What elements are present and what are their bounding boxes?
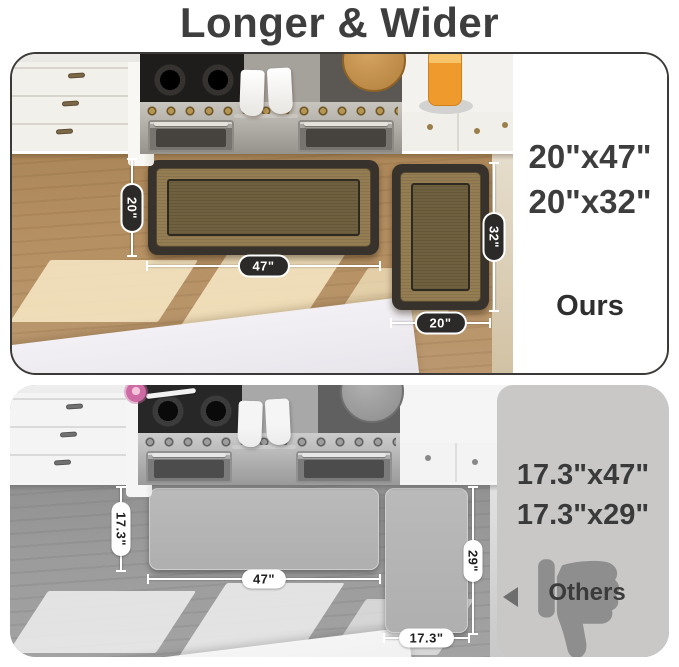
others-info-block: 17.3"x47" 17.3"x29" Others [497,385,669,657]
oven-door [146,451,232,483]
competitor-runner-mat [149,488,379,570]
ours-sizes: 20"x47" 20"x32" [528,134,651,224]
ours-panel: 20" 47" 32" 20" 20"x47" 20"x32" Ours [10,52,669,375]
cabinet-knob [474,128,480,134]
oven-door [148,120,234,152]
spatula-handle [146,388,196,399]
drawer-handle [68,72,85,78]
cabinet-knob [472,459,478,465]
left-pointer-icon [503,587,518,607]
competitor-small-mat [385,488,468,633]
others-size-line-1: 17.3"x47" [497,455,669,495]
ours-info-block: 20"x47" 20"x32" Ours [513,54,667,373]
others-size-line-2: 17.3"x29" [497,495,669,535]
kitchen-towel [239,70,265,117]
oven-door [298,120,394,152]
left-cabinets [12,62,140,154]
product-comparison-image: Longer & Wider [0,0,679,667]
page-title: Longer & Wider [0,0,679,46]
oven-door [296,451,392,483]
others-badge: Others [531,553,643,657]
runner-mat [148,160,379,255]
towel-rail [234,114,298,118]
ours-label: Ours [556,290,624,323]
flower-spatula [118,385,208,411]
others-sizes: 17.3"x47" 17.3"x29" [497,455,669,535]
orange-juice-glass [428,52,462,106]
flower-head [126,385,146,402]
ours-size-line-2: 20"x32" [528,179,651,224]
kitchen-towel [265,398,291,445]
kitchen-towel [237,401,263,448]
ours-size-line-1: 20"x47" [528,134,651,179]
towel-rail [232,445,296,449]
cabinet-knob [427,124,433,130]
others-panel: 17.3" 47" 29" 17.3" 17.3"x47" 17.3"x29" [10,385,669,657]
drawer-handle [56,128,73,134]
right-cabinets [402,112,522,154]
drawer-handle [54,459,71,465]
drawer-handle [60,431,77,437]
kitchen-towel [267,67,293,114]
drawer-handle [66,403,83,409]
others-label: Others [531,579,643,607]
drawer-handle [62,100,79,106]
small-mat [392,164,489,310]
cabinet-knob [502,122,508,128]
cabinet-knob [425,455,431,461]
